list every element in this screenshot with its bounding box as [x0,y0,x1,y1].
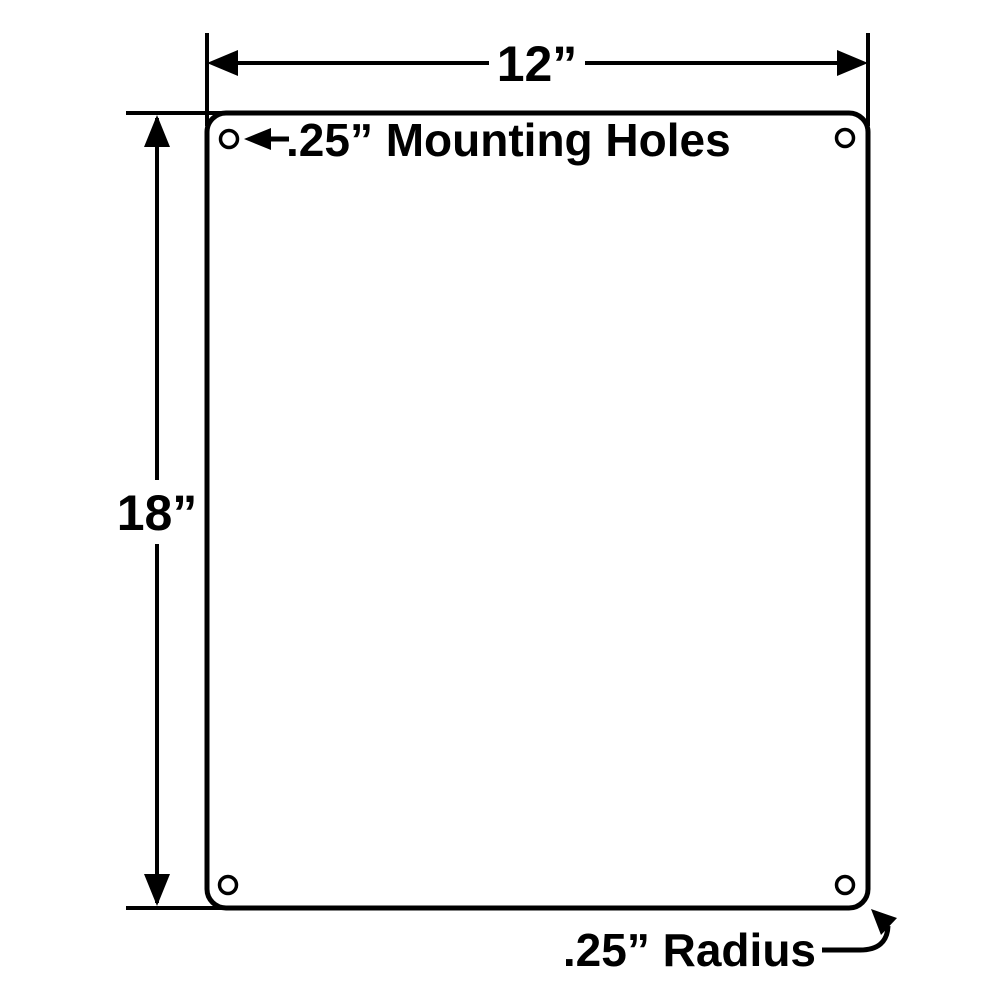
mounting-hole-bottom-left [220,877,237,894]
diagram-canvas: 12” 18” .25” Mounting Holes .25” Radius [0,0,1000,1000]
height-dimension: 18” [117,115,198,906]
mounting-hole-top-left [221,131,238,148]
radius-label: .25” Radius [563,924,816,976]
mounting-holes-arrow-icon [244,128,271,150]
panel-outline [207,113,868,908]
width-dimension: 12” [207,36,868,92]
corner-radius-callout: .25” Radius [563,909,897,976]
width-dimension-label: 12” [497,36,578,92]
radius-arrow-icon [871,909,897,935]
mounting-holes-label: .25” Mounting Holes [286,114,731,166]
panel-dimension-diagram: 12” 18” .25” Mounting Holes .25” Radius [0,0,1000,1000]
mounting-holes-callout: .25” Mounting Holes [244,114,731,166]
arrowhead-up-icon [144,115,170,147]
arrowhead-down-icon [144,874,170,906]
mounting-hole-top-right [837,130,854,147]
arrowhead-left-icon [207,50,238,76]
radius-leader-curve [822,926,888,950]
mounting-hole-bottom-right [837,877,854,894]
arrowhead-right-icon [837,50,868,76]
height-dimension-label: 18” [117,485,198,541]
